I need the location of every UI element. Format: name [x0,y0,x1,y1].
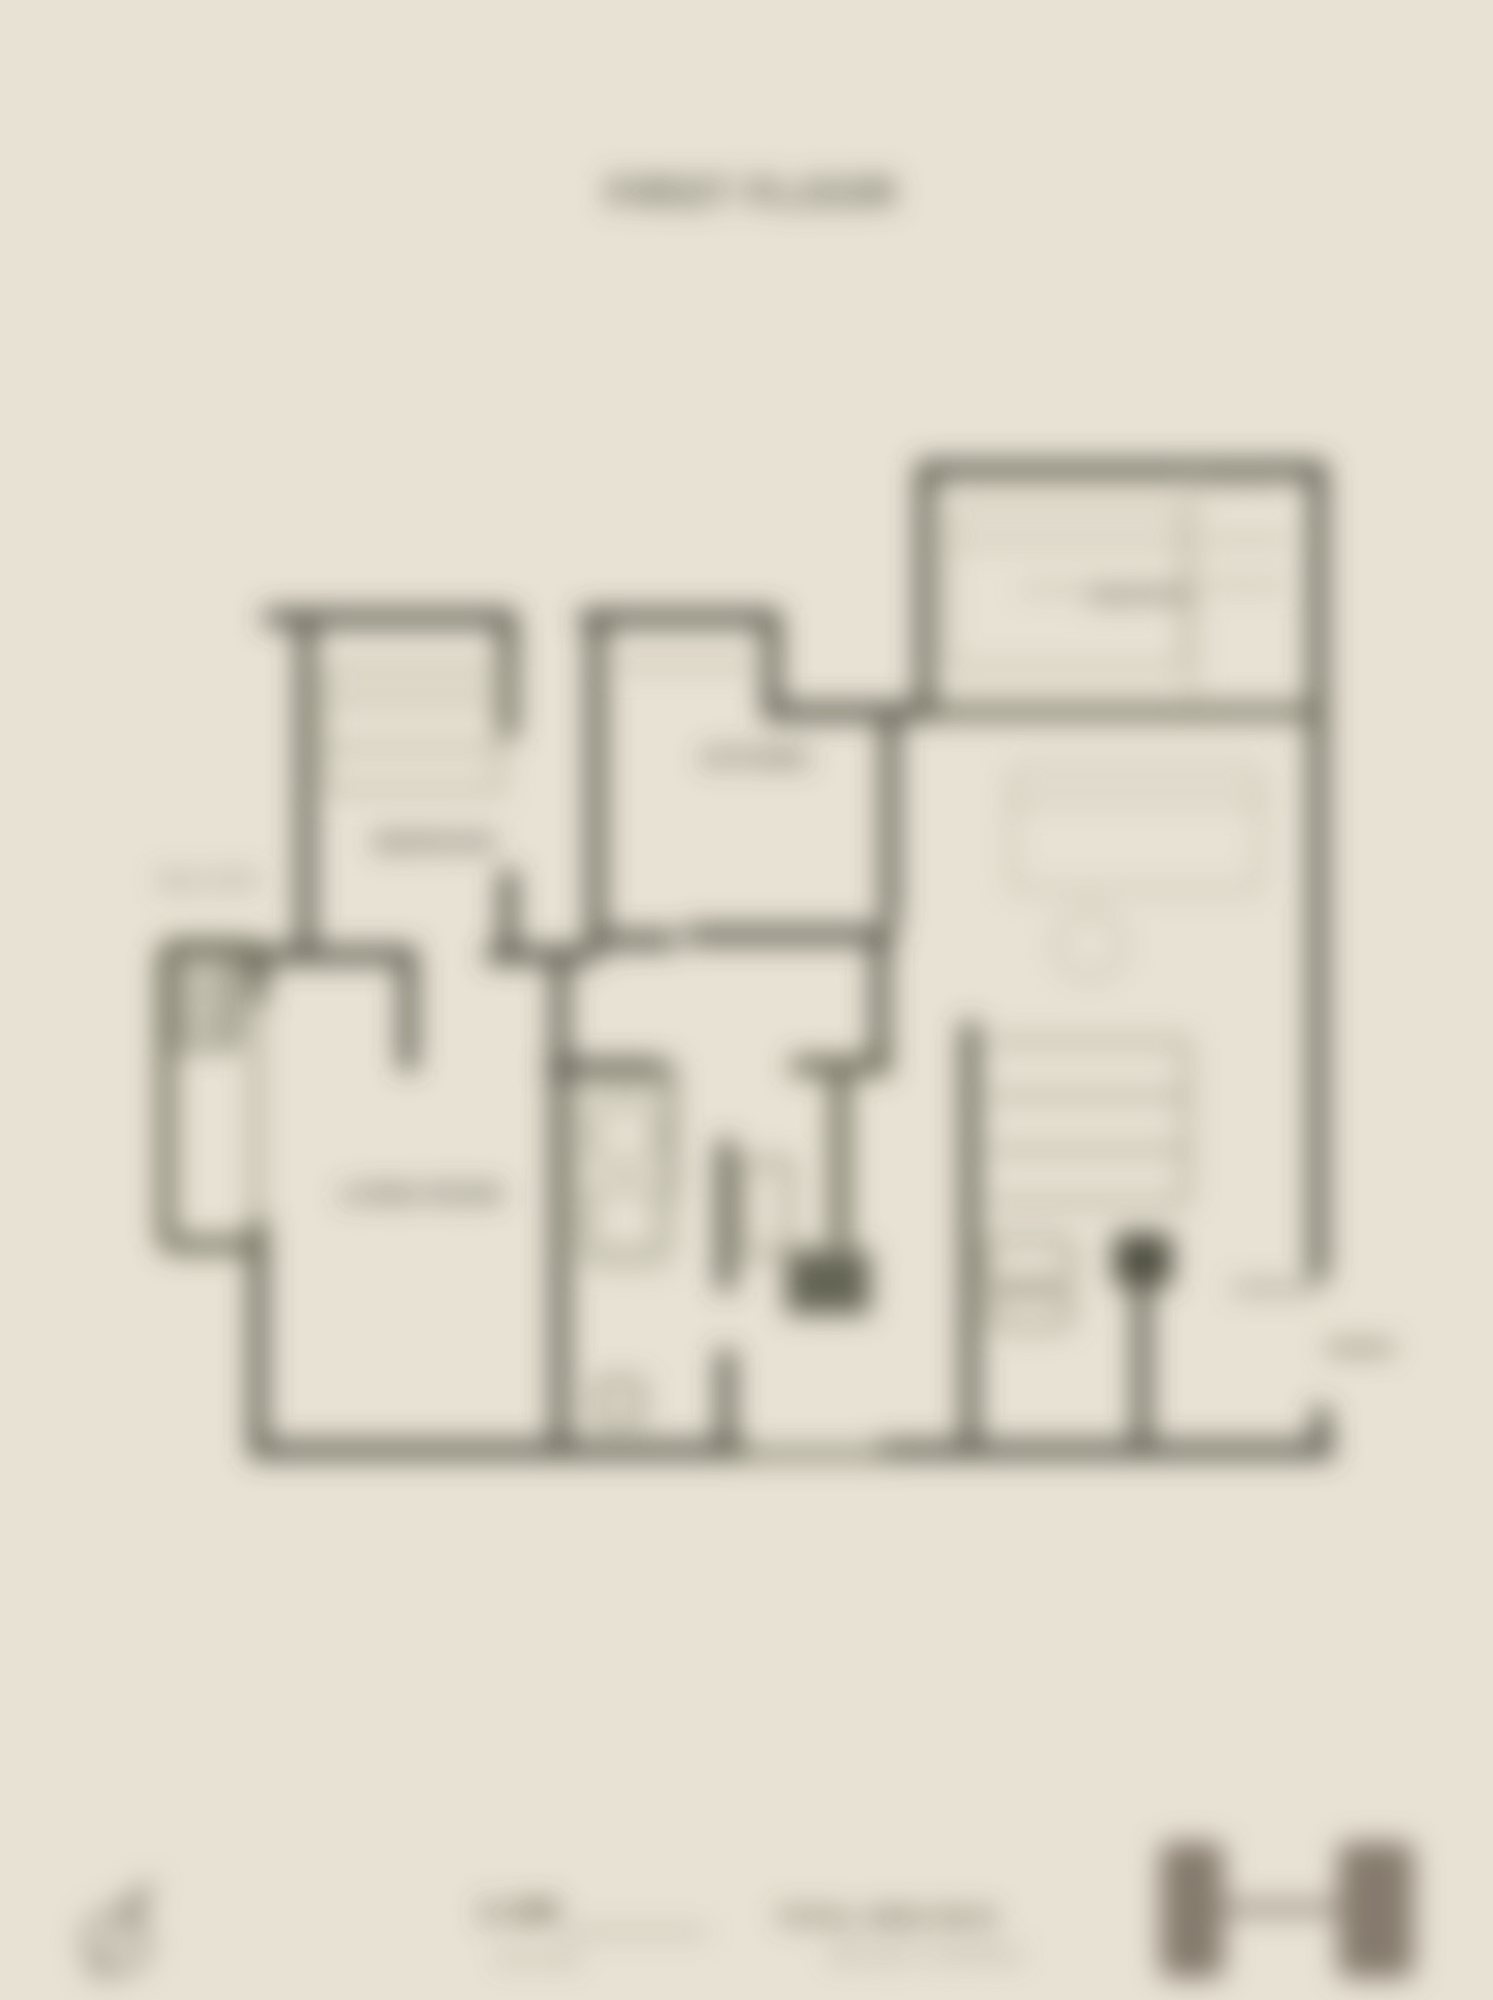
svg-text:KITCHEN: KITCHEN [702,745,809,772]
svg-text:1:100: 1:100 [478,1893,560,1929]
svg-text:BALCONY: BALCONY [158,868,263,893]
svg-text:BEDROOM: BEDROOM [374,829,494,855]
svg-text:LIVING ROOM: LIVING ROOM [340,1181,501,1208]
svg-text:0 1 2 m: 0 1 2 m [498,1945,578,1972]
svg-text:926 SQ FT APPROX: 926 SQ FT APPROX [828,1944,1023,1967]
svg-text:BEDROOM: BEDROOM [1090,586,1189,607]
svg-text:TOTAL AREA 86 M: TOTAL AREA 86 M [776,1904,995,1932]
svg-text:FIRST FLOOR: FIRST FLOOR [607,169,898,216]
